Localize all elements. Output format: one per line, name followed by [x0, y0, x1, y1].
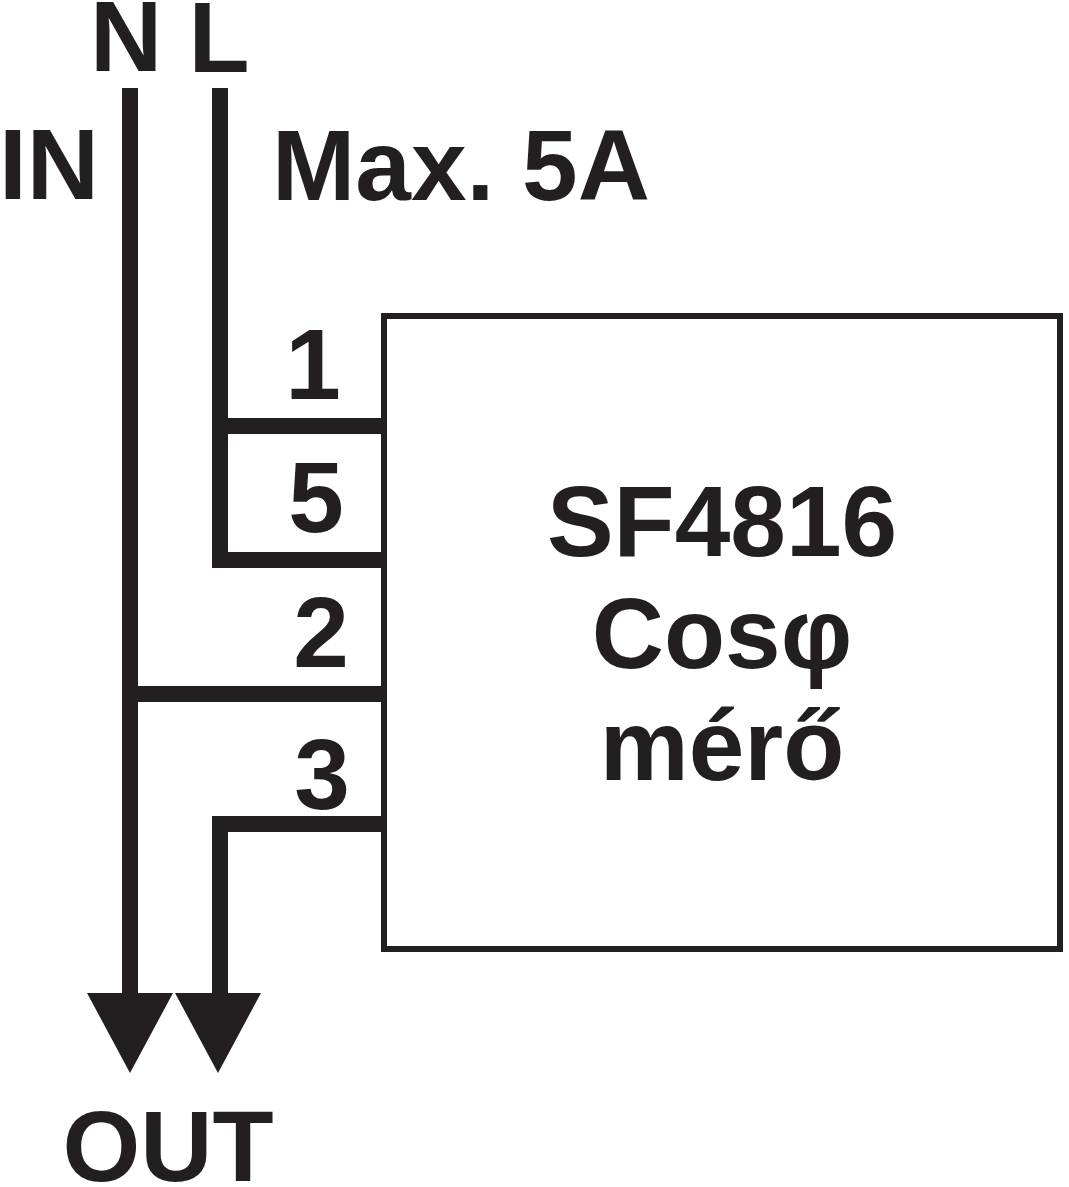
neutral-wire-label: N — [90, 0, 162, 86]
output-label: OUT — [62, 1096, 273, 1187]
terminal-5-label: 5 — [288, 447, 344, 547]
current-rating-label: Max. 5A — [272, 115, 650, 215]
line-wire-label: L — [188, 0, 249, 87]
device-name: SF4816 Cosφ mérő — [547, 465, 897, 801]
terminal-1-label: 1 — [285, 314, 341, 414]
device-box: SF4816 Cosφ mérő — [381, 313, 1063, 952]
wiring-diagram: N L IN Max. 5A 1 5 2 3 SF4816 Cosφ mérő … — [0, 0, 1069, 1187]
output-arrow-load-icon — [175, 993, 261, 1073]
terminal-5-wire — [212, 552, 388, 568]
input-label: IN — [0, 114, 99, 214]
device-function-2: mérő — [547, 689, 897, 801]
terminal-2-wire — [122, 686, 388, 702]
output-arrow-neutral-icon — [87, 993, 173, 1073]
device-function: Cosφ — [547, 577, 897, 689]
device-model: SF4816 — [547, 465, 897, 577]
terminal-3-label: 3 — [294, 724, 350, 824]
line-wire — [212, 88, 228, 568]
terminal-3-wire-vertical — [212, 816, 228, 1000]
terminal-1-wire — [212, 418, 388, 434]
neutral-wire — [122, 88, 138, 1000]
terminal-2-label: 2 — [293, 582, 349, 682]
